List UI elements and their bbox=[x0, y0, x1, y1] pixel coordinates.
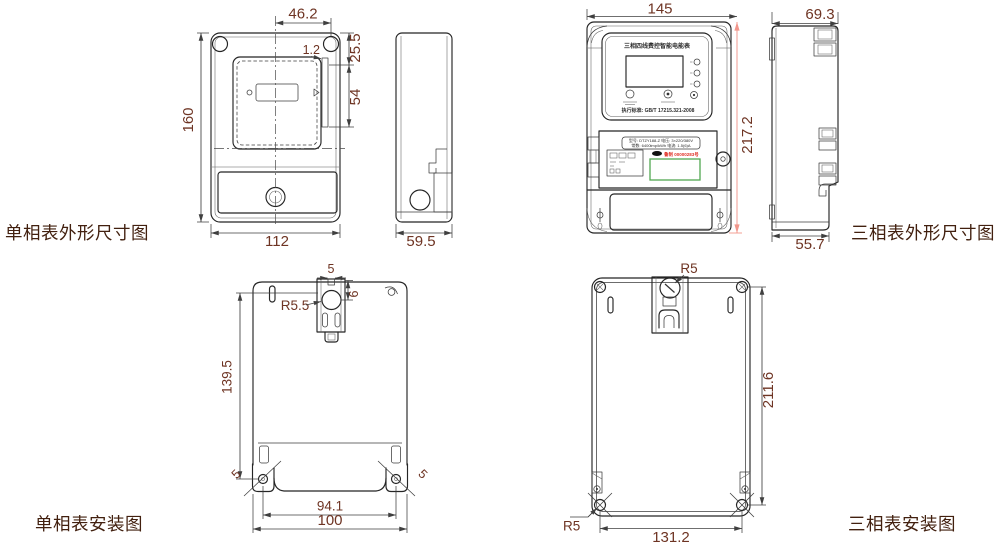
dim-label-hook-hole-radius: R5 bbox=[680, 261, 697, 276]
section-title-three-install: 三相表安装图 bbox=[848, 511, 956, 536]
top-slot-left bbox=[608, 297, 613, 313]
hook-hole bbox=[322, 291, 341, 310]
meter-cover bbox=[233, 57, 321, 149]
din-clip-lower bbox=[819, 163, 836, 174]
dim-label-side-top-depth: 69.3 bbox=[805, 6, 834, 23]
spec-line-2: 常数: 6400imp/kWh 电流: 1.5(6)A bbox=[631, 142, 690, 148]
lcd-display bbox=[626, 56, 683, 87]
rail-pointer-icon bbox=[314, 89, 319, 96]
keyhole-slot bbox=[659, 310, 679, 328]
terminal-cover bbox=[610, 194, 712, 230]
dim-label-gap: 1.2 bbox=[303, 43, 320, 57]
top-slot bbox=[270, 286, 276, 302]
seal-tab-lower bbox=[588, 163, 599, 177]
dim-label-hole-span: 131.2 bbox=[652, 529, 690, 546]
din-clip-upper bbox=[819, 128, 836, 139]
side-rail bbox=[322, 58, 328, 127]
dim-label-body-height: 217.2 bbox=[739, 116, 756, 154]
engineering-drawing-canvas: 46.2 1.2 25.5 54 160 112 59.5 bbox=[0, 0, 1000, 548]
dim-label-vertical-hole-span: 211.6 bbox=[760, 372, 777, 408]
dim-label-corner-hole-radius: R5 bbox=[563, 519, 580, 534]
indicator-led-3 bbox=[694, 81, 700, 87]
dim-label-body-width: 145 bbox=[647, 1, 672, 18]
hanger-hook-profile bbox=[819, 184, 836, 196]
dim-label-hook-hole-radius: R5.5 bbox=[281, 298, 310, 313]
single-phase-install-dimensions: 5 6 R5.5 139.5 5 5 94.1 100 bbox=[220, 262, 431, 533]
label-green-box bbox=[650, 159, 700, 180]
three-phase-front-view: 三相四线费控智能电能表 执行标准: GB/T 17215.321-2008 型号… bbox=[587, 22, 731, 233]
dim-label-side-bottom-depth: 55.7 bbox=[795, 236, 824, 253]
faceplate-standard: 执行标准: GB/T 17215.321-2008 bbox=[622, 107, 695, 114]
hook-hole-leader bbox=[675, 275, 684, 283]
bottom-bracket-left bbox=[260, 446, 269, 463]
bottom-bracket-right bbox=[392, 446, 401, 463]
hanging-hook-plate bbox=[652, 277, 688, 333]
dim-label-hook-depth: 6 bbox=[347, 290, 361, 297]
top-right-screw bbox=[388, 289, 395, 296]
display-button bbox=[626, 90, 634, 98]
section-title-three-outline: 三相表外形尺寸图 bbox=[851, 220, 995, 245]
single-phase-install-view bbox=[253, 279, 408, 492]
drawing-sheet: 46.2 1.2 25.5 54 160 112 59.5 bbox=[0, 0, 1000, 548]
dim-label-top-width: 46.2 bbox=[288, 6, 317, 23]
hanger-hook-profile bbox=[429, 149, 447, 173]
mount-hole-left bbox=[259, 475, 268, 484]
side-seal-screw bbox=[716, 152, 730, 166]
single-phase-side-dimensions: 59.5 bbox=[396, 224, 452, 250]
dim-label-rail-height: 54 bbox=[347, 89, 364, 106]
dim-label-outer-span: 100 bbox=[317, 512, 342, 529]
three-phase-install-view bbox=[588, 277, 754, 517]
indicator-led-1 bbox=[694, 59, 700, 65]
dim-label-upper-height: 25.5 bbox=[347, 33, 364, 62]
terminal-screw-side bbox=[410, 190, 430, 210]
single-phase-front-view bbox=[211, 16, 345, 227]
three-phase-side-view bbox=[770, 26, 839, 230]
dim-label-vertical-hole-span: 139.5 bbox=[220, 360, 235, 394]
indicator-led-2 bbox=[694, 70, 700, 76]
section-title-single-outline: 单相表外形尺寸图 bbox=[5, 220, 149, 245]
top-slot-right bbox=[728, 297, 733, 313]
serial-number: 鲁制 00000283号 bbox=[664, 151, 699, 158]
dim-label-right-hole: 5 bbox=[415, 467, 430, 482]
dim-label-body-width: 112 bbox=[265, 233, 289, 250]
lcd-display bbox=[256, 84, 298, 101]
single-phase-side-view bbox=[396, 33, 452, 222]
indicator-led bbox=[247, 90, 252, 95]
hook-tab bbox=[325, 332, 338, 342]
mount-hole-right bbox=[392, 475, 401, 484]
button-dot bbox=[667, 93, 670, 96]
wiring-diagram-box bbox=[607, 150, 643, 176]
dim-label-side-depth: 59.5 bbox=[406, 233, 435, 250]
dim-label-body-height: 160 bbox=[180, 107, 197, 132]
barcode-oval bbox=[652, 151, 662, 156]
dim-label-hook-slot: 5 bbox=[328, 262, 335, 276]
faceplate-name: 三相四线费控智能电能表 bbox=[624, 42, 691, 50]
seal-tab-upper bbox=[588, 137, 599, 150]
section-title-single-install: 单相表安装图 bbox=[35, 511, 143, 536]
